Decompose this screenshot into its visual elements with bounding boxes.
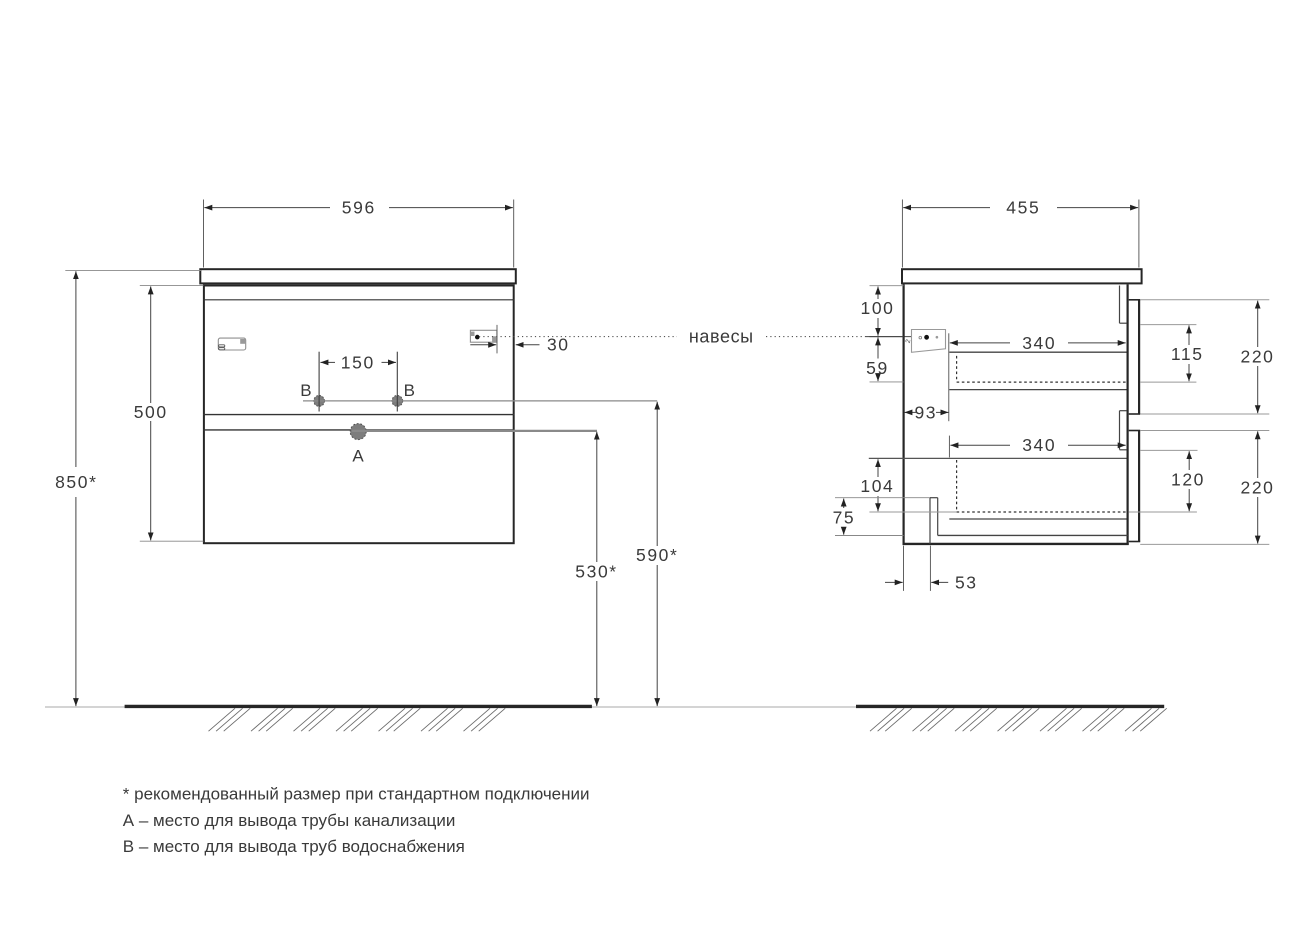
svg-text:500: 500 (134, 402, 168, 422)
svg-text:115: 115 (1171, 344, 1204, 364)
svg-text:120: 120 (1171, 469, 1205, 489)
svg-text:530*: 530* (575, 561, 617, 581)
svg-text:590*: 590* (636, 545, 678, 565)
svg-text:93: 93 (914, 402, 937, 422)
svg-text:* рекомендованный размер при с: * рекомендованный размер при стандартном… (123, 785, 590, 804)
svg-text:A: A (352, 447, 364, 466)
svg-text:B: B (404, 381, 415, 400)
svg-text:850*: 850* (55, 472, 97, 492)
svg-text:навесы: навесы (689, 327, 754, 347)
svg-text:150: 150 (341, 352, 375, 372)
svg-text:100: 100 (861, 298, 895, 318)
svg-text:455: 455 (1006, 198, 1040, 218)
svg-text:B: B (300, 381, 311, 400)
svg-text:59: 59 (866, 358, 889, 378)
svg-text:53: 53 (955, 572, 978, 592)
svg-text:340: 340 (1022, 435, 1056, 455)
svg-text:220: 220 (1241, 477, 1275, 497)
svg-text:В – место для вывода труб водо: В – место для вывода труб водоснабжения (123, 837, 465, 856)
svg-text:104: 104 (860, 476, 894, 496)
svg-text:596: 596 (342, 198, 376, 218)
svg-text:220: 220 (1241, 346, 1275, 366)
svg-text:75: 75 (833, 507, 856, 527)
svg-text:30: 30 (547, 335, 570, 355)
svg-text:А – место для вывода трубы кан: А – место для вывода трубы канализации (123, 811, 456, 830)
svg-text:340: 340 (1022, 333, 1056, 353)
